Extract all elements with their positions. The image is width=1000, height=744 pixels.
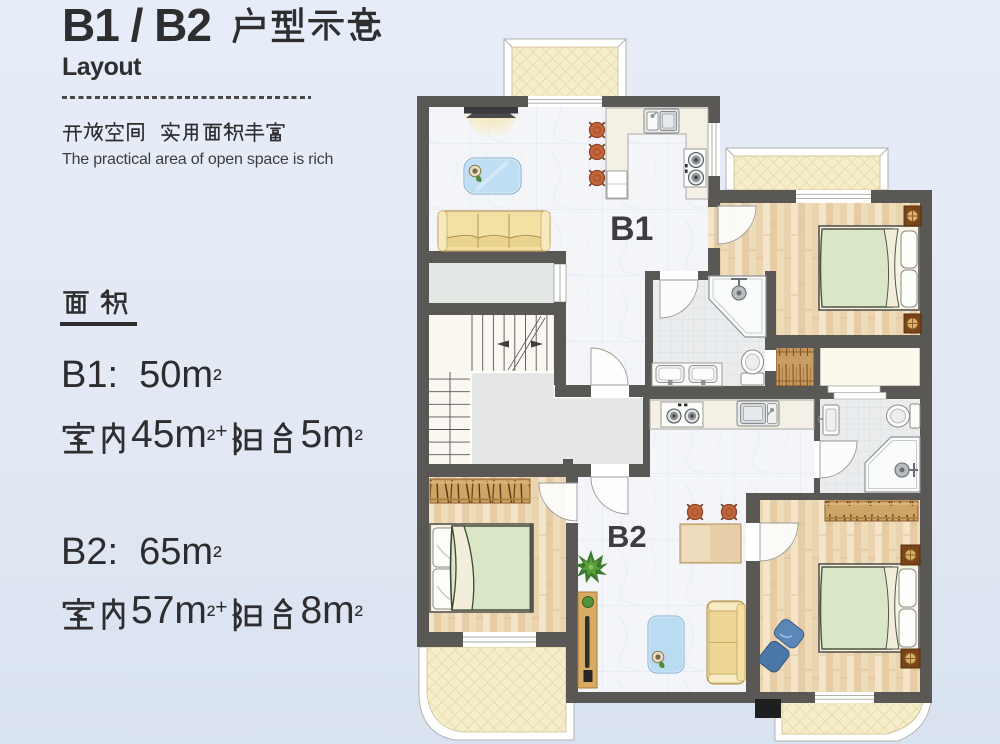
svg-text:B2: B2: [607, 519, 647, 554]
svg-text:B1: B1: [610, 210, 653, 248]
